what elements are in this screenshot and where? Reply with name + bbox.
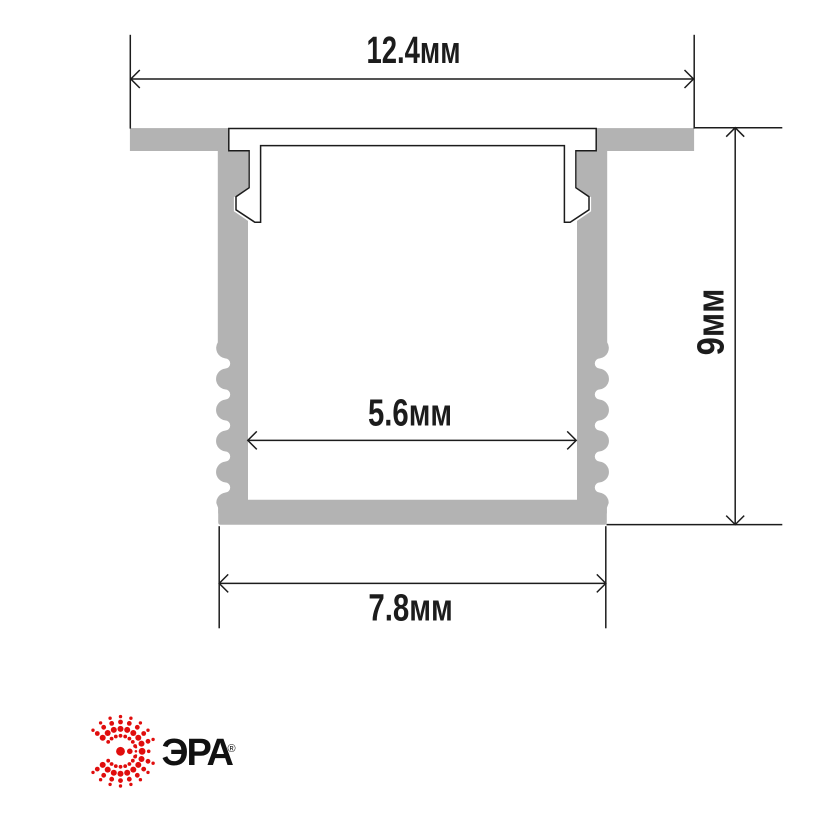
svg-text:ЭРА: ЭРА [162,732,234,774]
svg-text:®: ® [228,743,236,755]
svg-text:9мм: 9мм [690,289,732,356]
svg-text:12.4мм: 12.4мм [367,30,461,72]
svg-text:7.8мм: 7.8мм [368,588,453,630]
svg-text:5.6мм: 5.6мм [368,393,452,435]
